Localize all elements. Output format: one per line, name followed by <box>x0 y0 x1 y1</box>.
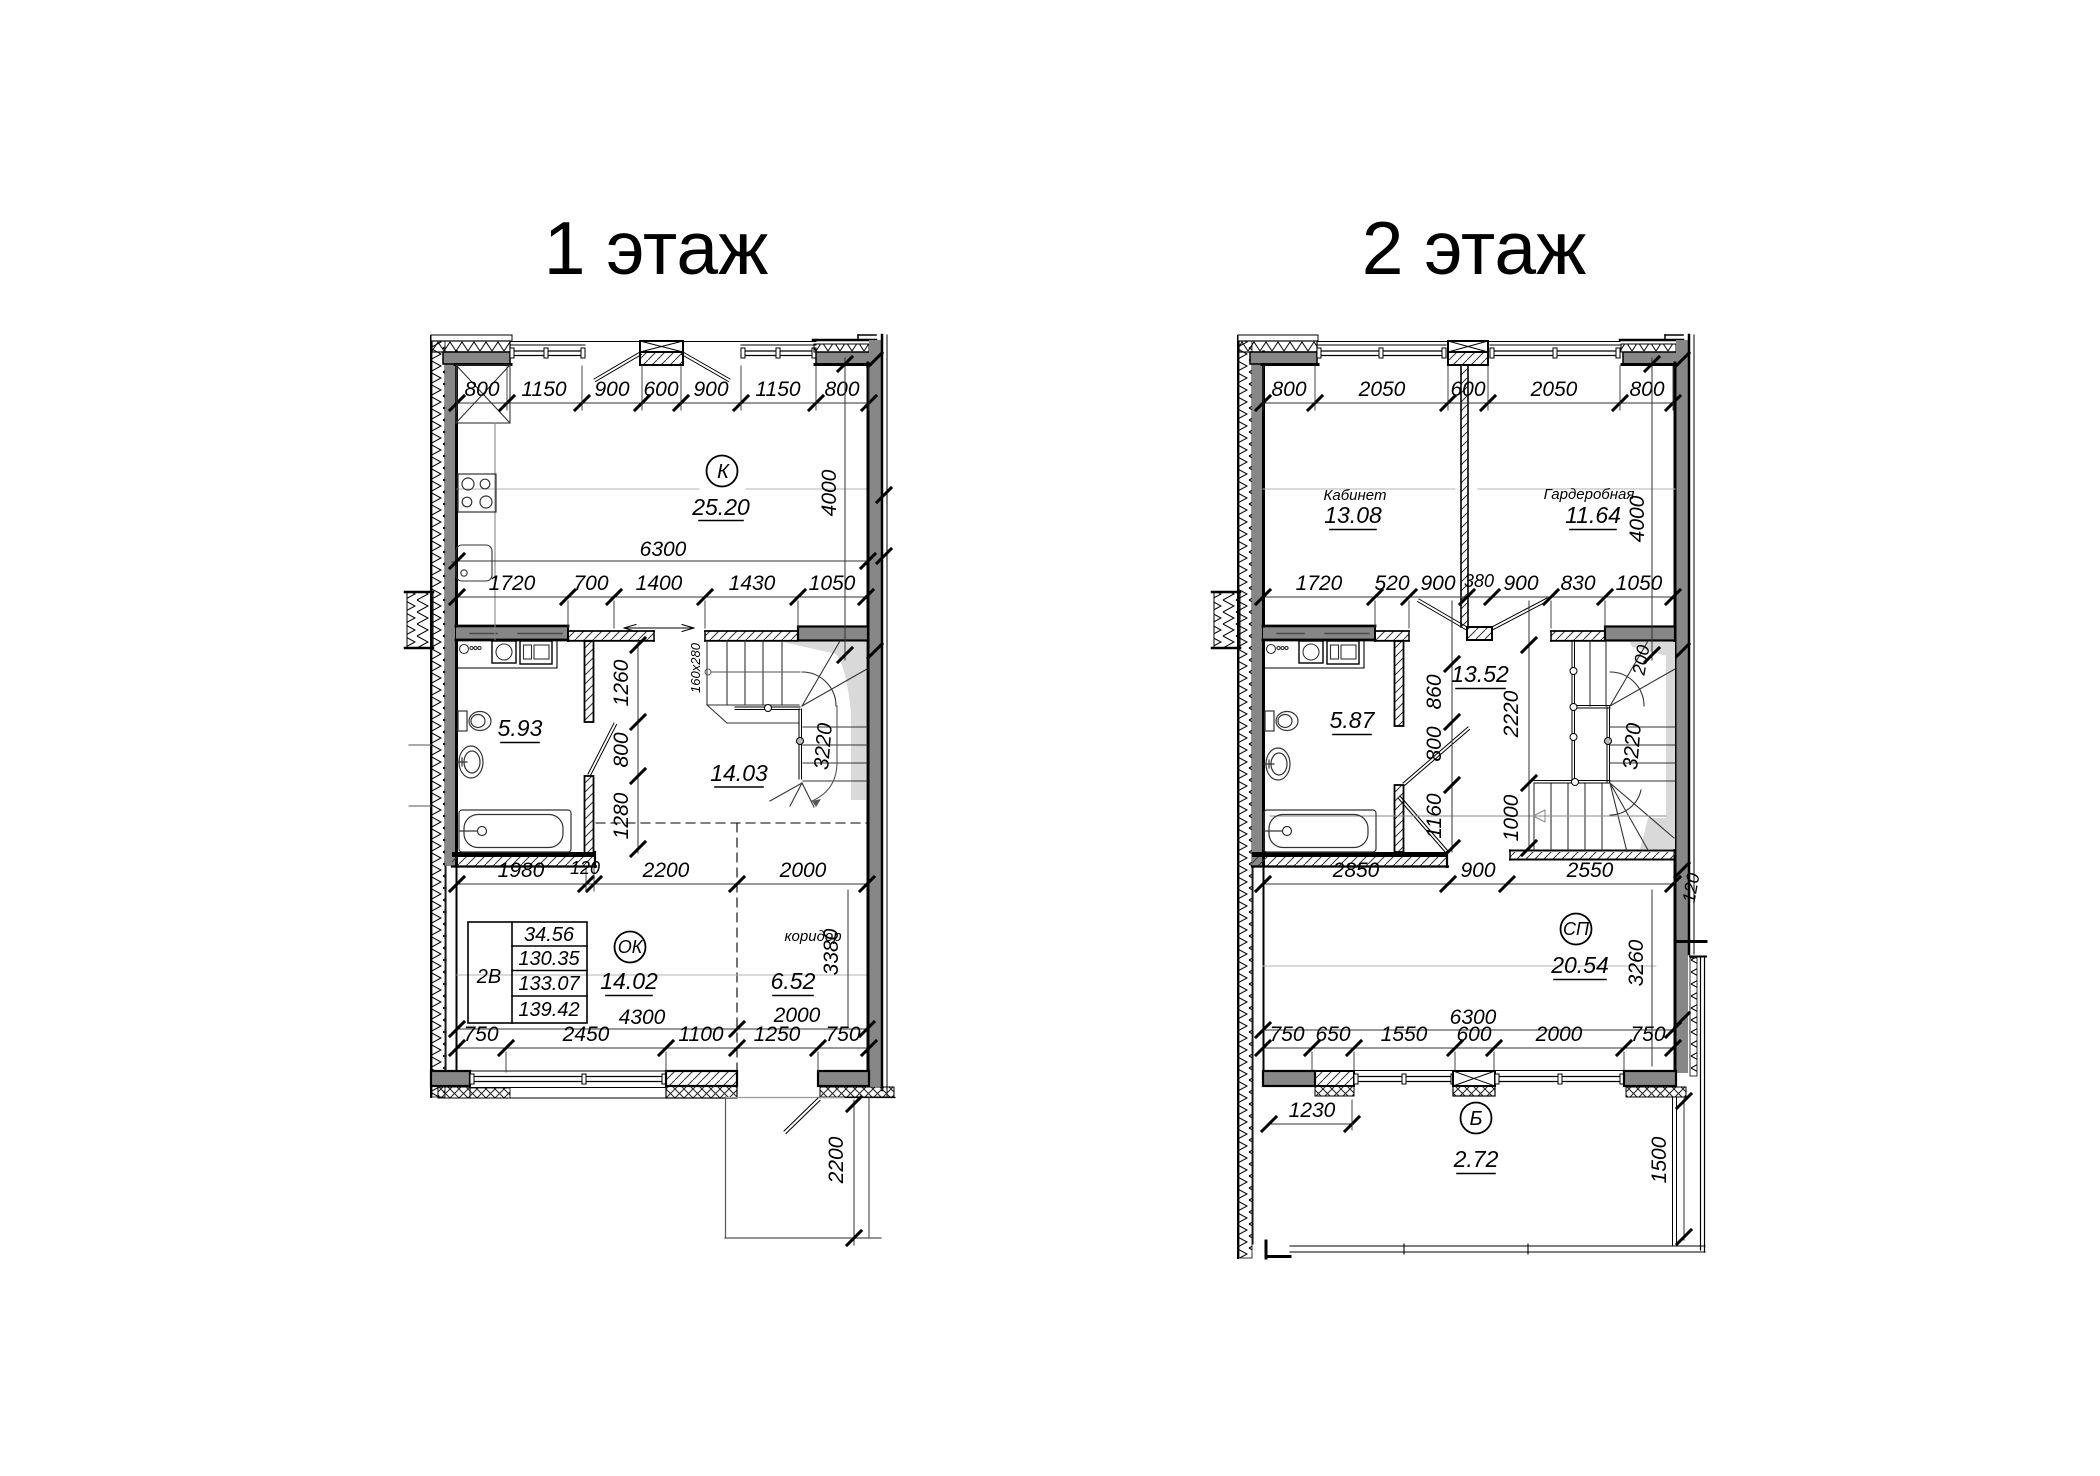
svg-text:520: 520 <box>1374 572 1409 595</box>
svg-text:1100: 1100 <box>678 1023 723 1046</box>
svg-text:2.72: 2.72 <box>1453 1146 1499 1172</box>
svg-text:750: 750 <box>463 1023 498 1046</box>
svg-text:1430: 1430 <box>729 572 776 595</box>
svg-text:900: 900 <box>1503 572 1538 595</box>
svg-text:900: 900 <box>1460 859 1495 882</box>
svg-text:139.42: 139.42 <box>518 999 579 1021</box>
svg-text:800: 800 <box>610 732 633 767</box>
svg-text:1720: 1720 <box>1296 572 1343 595</box>
svg-text:2050: 2050 <box>1358 378 1406 401</box>
svg-text:800: 800 <box>464 378 499 401</box>
svg-text:1160: 1160 <box>1423 793 1446 838</box>
svg-text:900: 900 <box>594 378 629 401</box>
svg-text:2000: 2000 <box>1535 1023 1583 1046</box>
svg-text:Гардеробная: Гардеробная <box>1544 486 1635 503</box>
svg-text:1260: 1260 <box>610 659 633 706</box>
svg-text:1 этаж: 1 этаж <box>544 206 769 290</box>
svg-text:3380: 3380 <box>820 928 843 975</box>
svg-text:5.87: 5.87 <box>1330 707 1376 733</box>
svg-text:900: 900 <box>693 378 728 401</box>
svg-text:750: 750 <box>1630 1023 1665 1046</box>
svg-text:1550: 1550 <box>1381 1023 1428 1046</box>
svg-text:133.07: 133.07 <box>518 973 580 995</box>
svg-text:25.20: 25.20 <box>691 494 750 520</box>
svg-text:2200: 2200 <box>825 1136 848 1184</box>
svg-text:6300: 6300 <box>640 538 687 561</box>
svg-text:830: 830 <box>1560 572 1595 595</box>
svg-text:1150: 1150 <box>521 378 566 401</box>
svg-text:5.93: 5.93 <box>498 715 543 741</box>
svg-text:380: 380 <box>1464 571 1494 591</box>
svg-text:1230: 1230 <box>1289 1099 1336 1122</box>
svg-text:2000: 2000 <box>779 859 827 882</box>
svg-text:1500: 1500 <box>1648 1136 1671 1183</box>
svg-text:2В: 2В <box>476 966 501 988</box>
svg-text:860: 860 <box>1423 674 1446 709</box>
svg-text:600: 600 <box>1456 1023 1491 1046</box>
svg-text:20.54: 20.54 <box>1550 952 1609 978</box>
svg-text:3260: 3260 <box>1625 939 1648 986</box>
svg-text:800: 800 <box>1629 378 1664 401</box>
svg-text:1980: 1980 <box>498 859 545 882</box>
svg-text:СП: СП <box>1563 919 1590 939</box>
svg-text:650: 650 <box>1315 1023 1350 1046</box>
svg-text:4300: 4300 <box>619 1006 666 1029</box>
svg-text:2050: 2050 <box>1530 378 1578 401</box>
svg-text:1050: 1050 <box>1616 572 1663 595</box>
svg-text:14.03: 14.03 <box>710 760 768 786</box>
svg-text:1250: 1250 <box>754 1023 801 1046</box>
svg-text:750: 750 <box>825 1023 860 1046</box>
svg-text:1150: 1150 <box>755 378 800 401</box>
svg-text:2220: 2220 <box>1500 690 1523 738</box>
svg-text:2200: 2200 <box>642 859 690 882</box>
svg-text:1280: 1280 <box>610 792 633 839</box>
svg-text:1400: 1400 <box>636 572 683 595</box>
svg-text:1720: 1720 <box>489 572 536 595</box>
svg-text:2850: 2850 <box>1332 859 1380 882</box>
svg-text:800: 800 <box>1423 726 1446 761</box>
svg-text:160х280: 160х280 <box>688 642 703 693</box>
svg-text:1050: 1050 <box>809 572 856 595</box>
svg-text:4000: 4000 <box>1626 495 1649 542</box>
svg-text:Б: Б <box>1469 1108 1482 1130</box>
svg-text:13.08: 13.08 <box>1324 502 1382 528</box>
svg-text:14.02: 14.02 <box>600 968 658 994</box>
svg-text:120: 120 <box>570 858 600 878</box>
svg-text:2450: 2450 <box>562 1023 610 1046</box>
svg-text:600: 600 <box>643 378 678 401</box>
svg-text:3220: 3220 <box>1619 722 1646 771</box>
svg-text:13.52: 13.52 <box>1451 661 1509 687</box>
svg-text:3220: 3220 <box>810 722 837 771</box>
svg-text:800: 800 <box>824 378 859 401</box>
svg-text:1000: 1000 <box>1500 794 1523 841</box>
svg-text:11.64: 11.64 <box>1565 502 1621 528</box>
svg-text:К: К <box>717 461 730 483</box>
svg-text:900: 900 <box>1420 572 1455 595</box>
svg-text:130.35: 130.35 <box>518 948 580 970</box>
svg-text:800: 800 <box>1271 378 1306 401</box>
svg-text:2 этаж: 2 этаж <box>1362 206 1587 290</box>
svg-text:750: 750 <box>1269 1023 1304 1046</box>
svg-text:600: 600 <box>1450 378 1485 401</box>
svg-text:6.52: 6.52 <box>771 968 816 994</box>
svg-text:4000: 4000 <box>818 469 841 516</box>
svg-text:34.56: 34.56 <box>524 924 575 946</box>
svg-text:2550: 2550 <box>1566 859 1614 882</box>
svg-text:700: 700 <box>573 572 608 595</box>
svg-text:ОК: ОК <box>618 937 644 957</box>
